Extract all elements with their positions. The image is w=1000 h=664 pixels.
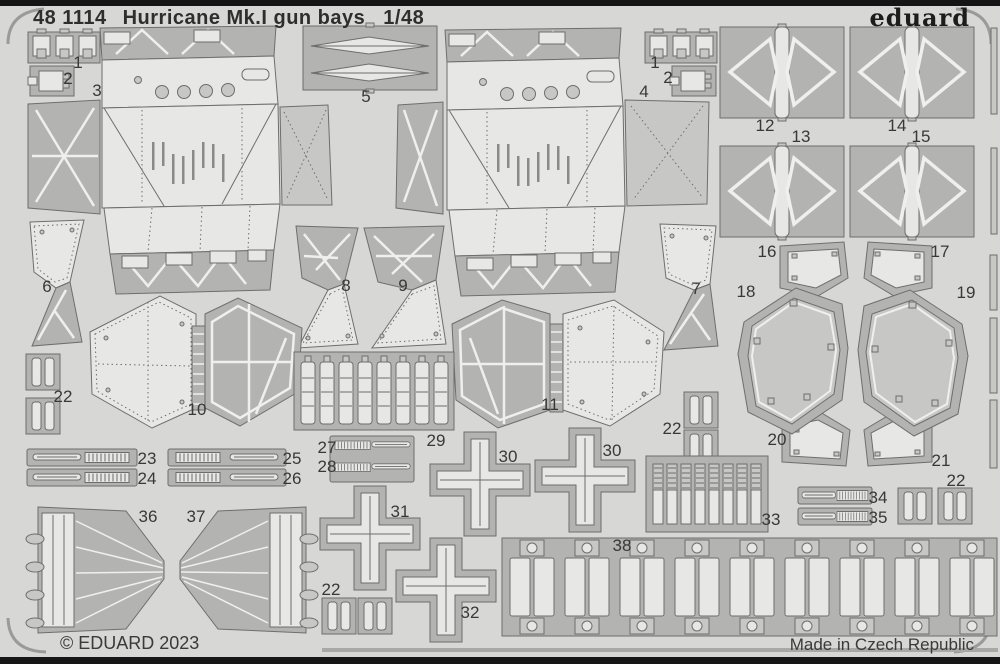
part-label-29: 29: [427, 431, 446, 451]
part-label-34: 34: [869, 488, 888, 508]
copyright-text: © EDUARD 2023: [60, 633, 199, 654]
part-label-21: 21: [932, 451, 951, 471]
part-label-36: 36: [139, 507, 158, 527]
part-label-19: 19: [957, 283, 976, 303]
part-label-3: 3: [92, 81, 101, 101]
part-label-22: 22: [663, 419, 682, 439]
eduard-logo: eduard: [870, 3, 970, 32]
part-label-10: 10: [188, 400, 207, 420]
part-label-13: 13: [792, 127, 811, 147]
part-label-18: 18: [737, 282, 756, 302]
part-label-20: 20: [768, 430, 787, 450]
part-label-17: 17: [931, 242, 950, 262]
part-label-2: 2: [63, 69, 72, 89]
part-label-9: 9: [398, 276, 407, 296]
part-label-23: 23: [138, 449, 157, 469]
sheet-header: 48 1114Hurricane Mk.I gun bays1/48: [33, 7, 424, 30]
part-label-5: 5: [361, 87, 370, 107]
part-label-12: 12: [756, 116, 775, 136]
made-in-text: Made in Czech Republic: [790, 635, 974, 655]
sheet-scale: 1/48: [383, 7, 424, 29]
part-labels-layer: 1235124121314151617181968971011222324252…: [0, 0, 1000, 664]
part-label-4: 4: [639, 82, 648, 102]
part-label-30: 30: [603, 441, 622, 461]
part-label-16: 16: [758, 242, 777, 262]
part-label-25: 25: [283, 449, 302, 469]
part-label-22: 22: [322, 580, 341, 600]
part-label-1: 1: [650, 53, 659, 73]
sheet-title: Hurricane Mk.I gun bays: [123, 7, 366, 29]
part-label-1: 1: [73, 53, 82, 73]
part-label-31: 31: [391, 502, 410, 522]
part-label-11: 11: [541, 395, 559, 415]
part-label-24: 24: [138, 469, 157, 489]
part-label-6: 6: [42, 277, 51, 297]
part-label-28: 28: [318, 457, 337, 477]
part-label-27: 27: [318, 438, 337, 458]
catalog-number: 48 1114: [33, 7, 107, 29]
part-label-22: 22: [54, 387, 73, 407]
part-label-38: 38: [613, 536, 632, 556]
part-label-32: 32: [461, 603, 480, 623]
part-label-14: 14: [888, 116, 907, 136]
part-label-37: 37: [187, 507, 206, 527]
part-label-30: 30: [499, 447, 518, 467]
part-label-33: 33: [762, 510, 781, 530]
part-label-35: 35: [869, 508, 888, 528]
part-label-8: 8: [341, 276, 350, 296]
part-label-22: 22: [947, 471, 966, 491]
part-label-2: 2: [663, 68, 672, 88]
photo-etch-sheet: 48 1114Hurricane Mk.I gun bays1/48 eduar…: [0, 0, 1000, 664]
part-label-7: 7: [691, 279, 700, 299]
part-label-15: 15: [912, 127, 931, 147]
part-label-26: 26: [283, 469, 302, 489]
